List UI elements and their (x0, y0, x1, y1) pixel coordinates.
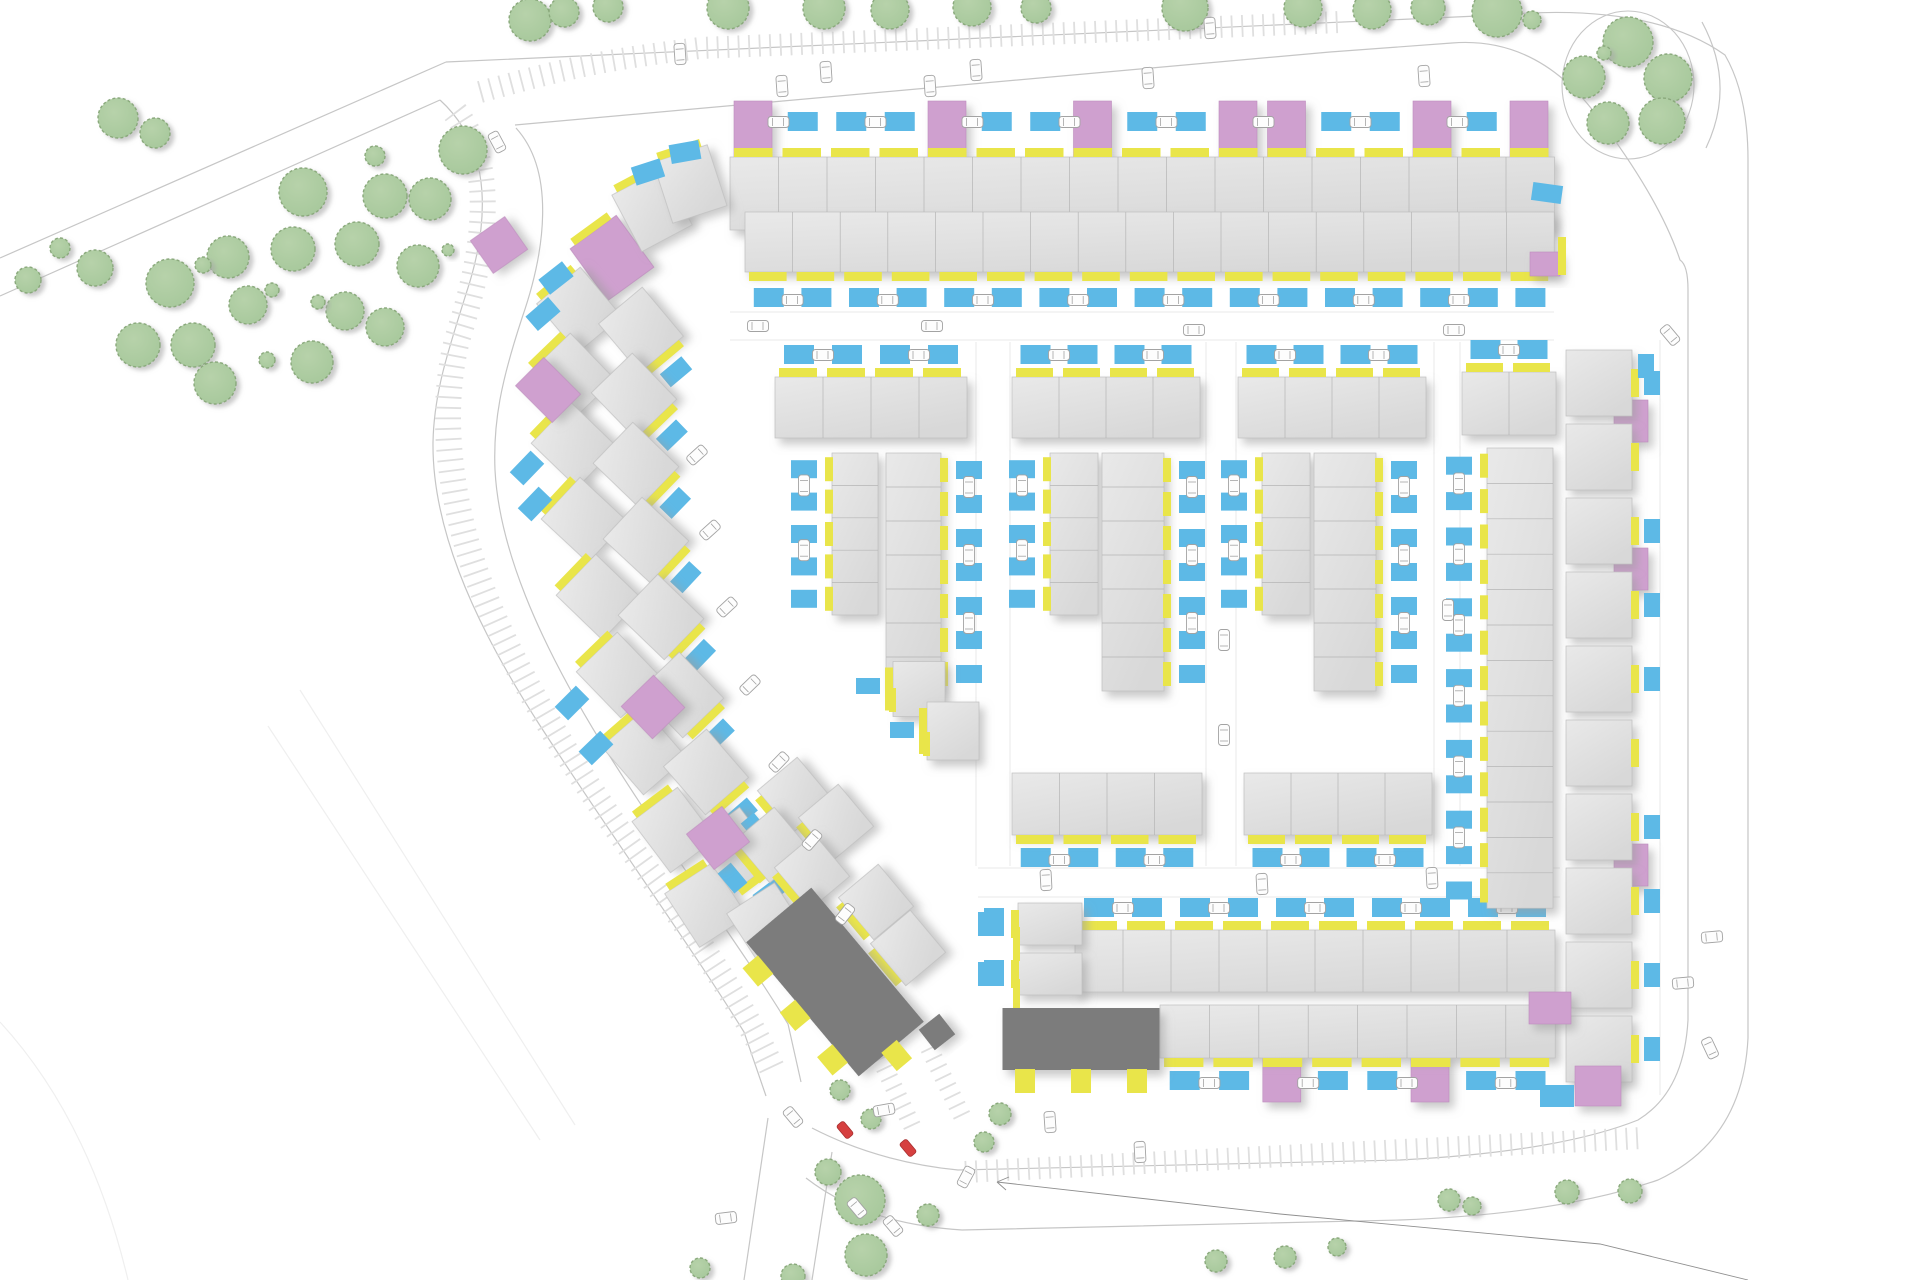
car-icon (748, 321, 769, 332)
front-door-strip (1415, 921, 1453, 930)
front-door-strip (1316, 148, 1355, 157)
car-icon (1229, 475, 1240, 496)
front-door-strip (923, 368, 961, 377)
front-door-strip (1312, 1058, 1351, 1067)
buildings-layer (470, 101, 1660, 1107)
house-unit (1566, 572, 1632, 638)
parking-pad (1341, 345, 1371, 364)
car-icon (964, 545, 975, 566)
front-door-strip (1460, 1058, 1499, 1067)
tree-icon (1618, 1179, 1642, 1203)
car-icon (1399, 545, 1410, 566)
car-icon (873, 1103, 896, 1117)
tree-icon (98, 98, 138, 138)
front-door-strip (1163, 560, 1171, 584)
parking-pad (1115, 345, 1145, 364)
front-door-strip (1365, 148, 1404, 157)
front-door-strip (1480, 666, 1488, 690)
front-door-strip (977, 148, 1016, 157)
parking-pad (1468, 288, 1498, 307)
parking-pad (1221, 590, 1247, 608)
tree-icon (171, 323, 215, 367)
car-icon (1369, 350, 1390, 361)
parking-pad (1230, 288, 1260, 307)
car-icon (964, 477, 975, 498)
parking-pad (1446, 563, 1472, 581)
parking-pad (1644, 519, 1660, 543)
parking-pad (1446, 846, 1472, 864)
car-icon (1068, 295, 1089, 306)
tree-icon (140, 118, 170, 148)
car-icon (487, 130, 507, 154)
front-door-strip (880, 148, 919, 157)
parking-pad (1021, 345, 1051, 364)
front-door-strip (1025, 148, 1064, 157)
front-door-strip (1513, 363, 1550, 372)
car-icon (1256, 873, 1268, 895)
car-icon (1701, 931, 1723, 944)
crescent-house (535, 472, 627, 563)
car-icon (1443, 600, 1454, 621)
parking-pad (1446, 669, 1472, 687)
parking-pad (1446, 705, 1472, 723)
parking-pad (1370, 112, 1400, 131)
front-door-strip (1413, 148, 1452, 157)
car-icon (813, 350, 834, 361)
front-door-strip (1043, 490, 1051, 514)
front-door-strip (1163, 526, 1171, 550)
front-door-strip (797, 272, 835, 281)
tree-icon (363, 174, 407, 218)
car-icon (1447, 117, 1468, 128)
parking-pad (1180, 898, 1210, 917)
car-icon (1134, 1141, 1146, 1163)
parking-pad (1638, 354, 1654, 378)
front-door-strip (889, 688, 896, 712)
parking-pad (801, 288, 831, 307)
front-door-strip (1631, 369, 1639, 397)
parking-pad (1324, 898, 1354, 917)
car-icon (1499, 345, 1520, 356)
front-door-strip (875, 368, 913, 377)
front-door-strip (1289, 368, 1326, 377)
masterplan-svg (0, 0, 1920, 1280)
car-icon (973, 295, 994, 306)
parking-pad (897, 288, 927, 307)
block-d-terrace (1446, 448, 1553, 908)
car-icon (739, 674, 762, 697)
car-icon (820, 61, 832, 83)
car-icon (865, 117, 886, 128)
front-door-strip (1480, 489, 1488, 513)
parking-pad (836, 112, 866, 131)
car-icon (922, 321, 943, 332)
front-door-strip (1631, 517, 1639, 545)
tree-icon (845, 1234, 887, 1276)
tree-icon (1472, 0, 1522, 37)
car-icon (1219, 725, 1230, 746)
front-door-strip (734, 148, 773, 157)
front-door-strip (940, 526, 948, 550)
parking-pad (1540, 1085, 1574, 1107)
front-door-strip (1016, 368, 1053, 377)
house-unit (1566, 498, 1632, 564)
parking-pad (1170, 1071, 1200, 1090)
front-door-strip (1375, 662, 1383, 686)
car-icon (782, 1105, 804, 1128)
car-icon (1142, 67, 1154, 89)
terrace-row (1487, 448, 1553, 908)
front-door-strip (1320, 272, 1358, 281)
front-door-strip (1367, 921, 1405, 930)
house-unit (1566, 424, 1632, 490)
parking-pad (992, 288, 1022, 307)
house-unit (1018, 903, 1082, 945)
entrance-stub (1015, 1069, 1035, 1093)
front-door-strip (1480, 737, 1488, 761)
site-plan-canvas (0, 0, 1920, 1280)
terrace-row (1050, 453, 1098, 615)
parking-pad (1084, 898, 1114, 917)
parking-pad (1347, 848, 1377, 867)
front-door-strip (1375, 628, 1383, 652)
front-door-strip (1248, 835, 1285, 844)
tree-icon (335, 222, 379, 266)
car-icon (970, 59, 982, 81)
front-door-strip (940, 560, 948, 584)
front-door-strip (1631, 813, 1639, 841)
field-boundary-line (0, 1022, 128, 1280)
front-door-strip (1558, 237, 1566, 275)
front-door-strip (827, 368, 865, 377)
car-icon (1040, 869, 1052, 891)
parking-pad (1247, 345, 1277, 364)
tree-icon (690, 1258, 710, 1278)
car-icon (1229, 540, 1240, 561)
car-icon-red (836, 1121, 854, 1140)
tree-icon (1205, 1250, 1227, 1272)
front-door-strip (831, 148, 870, 157)
parking-pad (1116, 848, 1146, 867)
crescent-house (525, 397, 616, 488)
tree-icon (509, 0, 551, 41)
front-door-strip (987, 272, 1025, 281)
car-icon (1049, 350, 1070, 361)
car-icon (1399, 613, 1410, 634)
front-door-strip (1480, 595, 1488, 619)
parking-pad (1644, 963, 1660, 987)
front-door-strip (1255, 554, 1263, 578)
car-icon (1199, 1078, 1220, 1089)
car-icon (716, 596, 739, 618)
parking-pad (1179, 665, 1205, 683)
front-door-strip (1130, 272, 1168, 281)
tree-icon (1563, 56, 1605, 98)
tree-icon (365, 146, 385, 166)
car-icon (1350, 117, 1371, 128)
car-icon (956, 1165, 976, 1189)
tree-icon (1274, 1246, 1296, 1268)
car-icon (799, 475, 810, 496)
front-door-strip (1074, 148, 1113, 157)
parking-pad (510, 451, 545, 486)
front-door-strip (1375, 526, 1383, 550)
tree-icon (974, 1132, 994, 1152)
tree-icon (803, 0, 845, 29)
field-boundary-line (300, 690, 575, 1125)
tree-icon (265, 283, 279, 297)
front-door-strip (928, 148, 967, 157)
parking-pad (1318, 1071, 1348, 1090)
parking-pad (1515, 288, 1545, 307)
car-icon (1275, 350, 1296, 361)
tree-icon (1463, 1197, 1481, 1215)
front-door-strip (1263, 1058, 1302, 1067)
front-door-strip (939, 272, 977, 281)
front-door-strip (749, 272, 787, 281)
parking-pad (1466, 1071, 1496, 1090)
front-door-strip (825, 587, 833, 611)
front-door-strip (1480, 525, 1488, 549)
car-icon (909, 350, 930, 361)
parking-pad (1039, 288, 1069, 307)
car-icon (1399, 477, 1410, 498)
car-icon (1375, 855, 1396, 866)
parking-pad (1021, 848, 1051, 867)
block-c-top-row (1238, 345, 1426, 438)
front-door-strip (1163, 492, 1171, 516)
block-a-top-row (775, 345, 967, 438)
front-door-strip (1255, 457, 1263, 481)
east-column (1566, 350, 1660, 1082)
car-icon (964, 613, 975, 634)
parking-pad (1277, 288, 1307, 307)
front-door-strip (1510, 148, 1549, 157)
front-door-strip (1110, 368, 1147, 377)
parking-pad (1373, 288, 1403, 307)
car-icon (1113, 903, 1134, 914)
block-d-top-row (1462, 340, 1556, 435)
parking-pad (880, 345, 910, 364)
car-icon (1298, 1078, 1319, 1089)
front-door-strip (1164, 1058, 1203, 1067)
tree-icon (917, 1204, 939, 1226)
parking-pad (1446, 528, 1472, 546)
front-door-strip (1242, 368, 1279, 377)
front-door-strip (1268, 148, 1307, 157)
car-icon (1418, 65, 1430, 87)
front-door-strip (1082, 272, 1120, 281)
car-icon (1258, 295, 1279, 306)
parking-pad (1009, 590, 1035, 608)
car-icon (1187, 477, 1198, 498)
tree-icon (366, 308, 404, 346)
front-door-strip (1480, 772, 1488, 796)
car-icon (686, 444, 709, 466)
tree-icon (326, 292, 364, 330)
parking-pad (1372, 898, 1402, 917)
car-icon (1397, 1078, 1418, 1089)
car-icon (1209, 903, 1230, 914)
car-icon (1444, 325, 1465, 336)
front-door-strip (1480, 808, 1488, 832)
tree-icon (311, 295, 325, 309)
parking-pad (1644, 1037, 1660, 1061)
front-door-strip (1271, 921, 1309, 930)
tree-icon (271, 227, 315, 271)
parking-pad (1068, 848, 1098, 867)
car-icon (1143, 350, 1164, 361)
terrace-row (886, 453, 941, 691)
parking-pad (1420, 898, 1450, 917)
car-icon (1454, 756, 1465, 777)
front-door-strip (1362, 1058, 1401, 1067)
tree-icon (1523, 11, 1541, 29)
tree-icon (195, 257, 211, 273)
tree-icon (291, 341, 333, 383)
front-door-strip (1480, 631, 1488, 655)
front-door-strip (1375, 560, 1383, 584)
front-door-strip (923, 732, 930, 756)
field-boundary-line (268, 726, 540, 1140)
house-unit (1566, 794, 1632, 860)
parking-pad (1163, 848, 1193, 867)
car-icon (776, 75, 788, 97)
parking-pad (1446, 492, 1472, 510)
front-door-strip (1223, 921, 1261, 930)
front-door-strip (1336, 368, 1373, 377)
road-edge-line (744, 1118, 768, 1280)
parking-bay-hatch-band (965, 1138, 1642, 1172)
parking-pad (856, 678, 880, 694)
front-door-strip (1383, 368, 1420, 377)
front-door-strip (1295, 835, 1332, 844)
car-icon (1454, 685, 1465, 706)
feature-house-pink (1530, 252, 1560, 276)
front-door-strip (1462, 148, 1501, 157)
parking-pad (1471, 340, 1501, 359)
front-door-strip (1631, 665, 1639, 693)
block-c-bottom-row (1244, 773, 1432, 867)
front-door-strip (1255, 522, 1263, 546)
block-b-terrace-east (1102, 453, 1205, 691)
parking-pad (984, 960, 1004, 986)
parking-pad (1394, 848, 1424, 867)
tree-icon (815, 1159, 841, 1185)
front-door-strip (1013, 979, 1020, 1009)
front-door-strip (1013, 927, 1020, 961)
parking-pad (1228, 898, 1258, 917)
front-door-strip (1511, 921, 1549, 930)
tree-icon (1603, 17, 1653, 67)
parking-pad (1446, 634, 1472, 652)
north-terrace-row-1 (730, 101, 1555, 230)
front-door-strip (1127, 921, 1165, 930)
tree-icon (409, 178, 451, 220)
car-icon (699, 519, 722, 541)
tree-icon (871, 0, 909, 29)
parking-pad (1132, 898, 1162, 917)
front-door-strip (1389, 835, 1426, 844)
parking-pad (1420, 288, 1450, 307)
car-icon (799, 540, 810, 561)
terrace-row (1262, 453, 1310, 615)
parking-pad (890, 722, 914, 738)
block-c-terrace-east (1314, 453, 1417, 691)
car-icon (1253, 117, 1274, 128)
parking-pad (1087, 288, 1117, 307)
block-b-bottom-row (1012, 773, 1202, 867)
car-icon (1163, 295, 1184, 306)
front-door-strip (1463, 272, 1501, 281)
house-unit (1018, 953, 1082, 995)
parking-pad (1446, 811, 1472, 829)
tree-icon (1587, 102, 1629, 144)
front-door-strip (1368, 272, 1406, 281)
front-door-strip (1463, 921, 1501, 930)
parking-pad (1182, 288, 1212, 307)
car-icon (877, 295, 898, 306)
front-door-strip (1175, 921, 1213, 930)
car-icon (1049, 855, 1070, 866)
parking-pad (1467, 112, 1497, 131)
house-unit (1566, 720, 1632, 786)
tree-icon (1597, 46, 1611, 60)
front-door-strip (1177, 272, 1215, 281)
feature-house-pink (1529, 992, 1571, 1024)
front-door-strip (1079, 921, 1117, 930)
parking-pad (1276, 898, 1306, 917)
tree-icon (15, 267, 41, 293)
front-door-strip (940, 594, 948, 618)
front-door-strip (1043, 554, 1051, 578)
front-door-strip (1319, 921, 1357, 930)
car-icon (1156, 117, 1177, 128)
tree-icon (989, 1103, 1011, 1125)
car-icon-red (899, 1139, 917, 1158)
front-door-strip (1063, 368, 1100, 377)
car-icon (1187, 613, 1198, 634)
front-door-strip (1273, 272, 1311, 281)
car-icon (768, 117, 789, 128)
front-door-strip (1163, 594, 1171, 618)
front-door-strip (1480, 560, 1488, 584)
front-door-strip (940, 458, 948, 482)
car-icon (1017, 475, 1028, 496)
front-door-strip (1122, 148, 1161, 157)
front-door-strip (1255, 587, 1263, 611)
front-door-strip (825, 490, 833, 514)
front-door-strip (1342, 835, 1379, 844)
car-icon (1184, 325, 1205, 336)
car-icon (1426, 867, 1438, 889)
front-door-strip (1043, 457, 1051, 481)
parking-pad (982, 112, 1012, 131)
front-door-strip (1255, 490, 1263, 514)
front-door-strip (940, 628, 948, 652)
front-door-strip (1375, 594, 1383, 618)
terrace-row (745, 212, 1554, 272)
front-door-strip (844, 272, 882, 281)
front-door-strip (1631, 1035, 1639, 1063)
parking-pad (928, 345, 958, 364)
front-door-strip (1213, 1058, 1252, 1067)
block-b-terrace-west (1009, 453, 1098, 615)
front-door-strip (1480, 843, 1488, 867)
house-unit (1566, 646, 1632, 712)
front-door-strip (1157, 368, 1194, 377)
car-icon (1454, 544, 1465, 565)
